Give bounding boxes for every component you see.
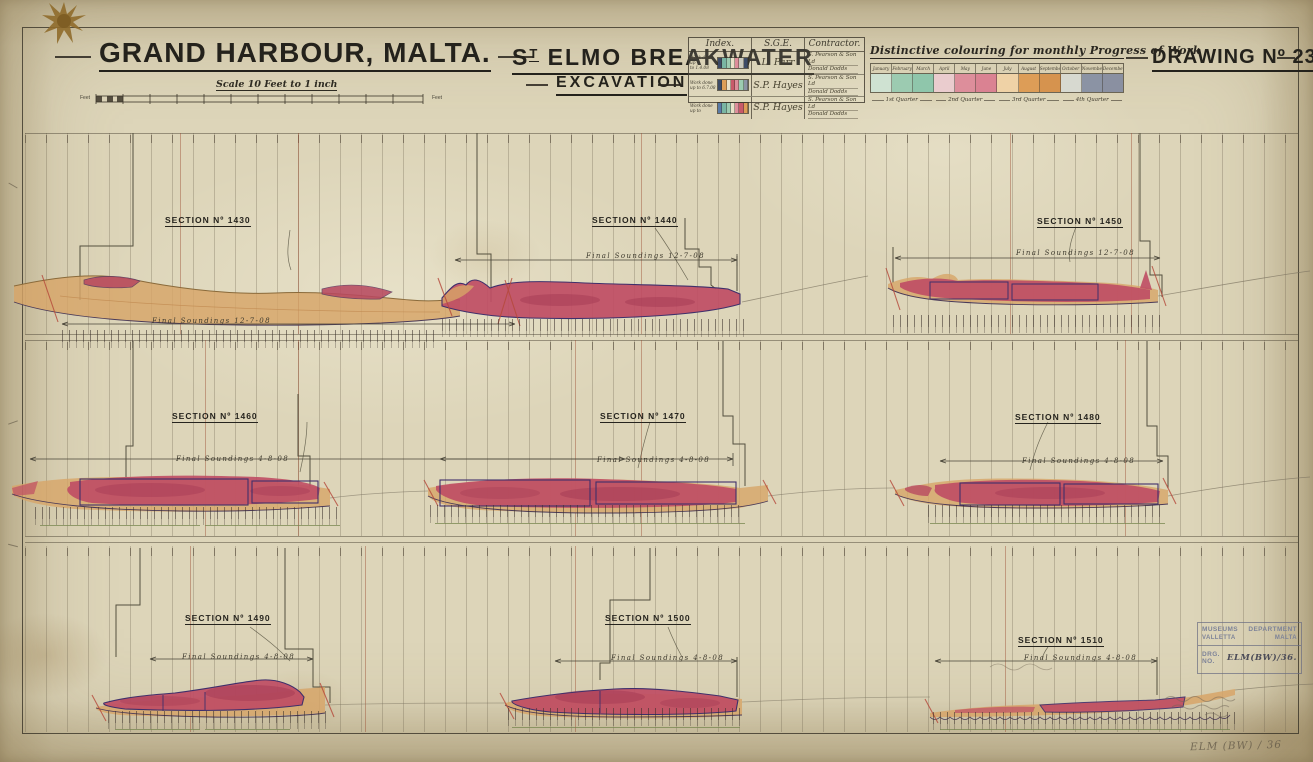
sge-signature: S.P. Hayes (752, 97, 805, 119)
section-label-1500: SECTION Nº 1500 (605, 613, 691, 625)
drawing-sheet: GRAND HARBOUR, MALTA. ST ELMO BREAKWATER… (0, 0, 1313, 762)
legend-month-colour (1061, 74, 1082, 92)
legend-month-label: August (1019, 64, 1040, 73)
work-done-label: Work done up (690, 55, 713, 65)
section-label-1450: SECTION Nº 1450 (1037, 216, 1123, 228)
legend-month-label: February (892, 64, 913, 73)
title-center-pre: S (512, 44, 529, 70)
progress-legend: Distinctive colouring for monthly Progre… (870, 44, 1124, 106)
final-soundings-1460: Final Soundings 4-8-08 (176, 455, 289, 463)
dimension-line-green (205, 729, 290, 730)
contractor-signature: S. Pearson & Son Ld (808, 97, 858, 111)
legend-quarter-label: 4th Quarter (1061, 94, 1125, 106)
stamp-country: MALTA (1275, 635, 1297, 641)
legend-month-label: April (934, 64, 955, 73)
contractor-signature: S. Pearson & Son Ld (808, 52, 858, 66)
pencil-note: ELM (BW) / 36 (1190, 739, 1282, 753)
legend-title: Distinctive colouring for monthly Progre… (870, 44, 1124, 59)
dimension-line-green (205, 525, 340, 526)
band-rule (25, 542, 1298, 543)
final-soundings-1440: Final Soundings 12-7-08 (586, 252, 705, 260)
work-done-date: up to 6.7.08 (690, 85, 716, 90)
legend-month-colour (913, 74, 934, 92)
legend-month-labels: January February March April May June Ju… (870, 63, 1124, 73)
stamp-drg-value: ELM(BW)/36. (1227, 653, 1297, 663)
index-row: Work doneup to 6.7.08 S.P. Hayes S. Pear… (689, 75, 864, 98)
dimension-line-green (940, 729, 1230, 730)
stamp-dept-word1: MUSEUMS (1202, 626, 1238, 633)
legend-month-colour (892, 74, 913, 92)
legend-month-label: October (1061, 64, 1082, 73)
contractor-signature: Donald Dodds (808, 66, 858, 74)
section-label-1440: SECTION Nº 1440 (592, 215, 678, 227)
contractor-signature: Donald Dodds (808, 111, 858, 119)
final-soundings-1470: Final Soundings 4-8-08 (597, 456, 710, 464)
legend-quarter-label: 2nd Quarter (934, 94, 998, 106)
legend-month-colour (955, 74, 976, 92)
legend-month-label: July (997, 64, 1018, 73)
contractor-signature: Donald Dodds (808, 89, 858, 97)
scale-ruler (93, 92, 429, 108)
legend-month-colour (1019, 74, 1040, 92)
dimension-line-green (40, 525, 200, 526)
legend-quarter-label: 3rd Quarter (997, 94, 1061, 106)
legend-month-colour (934, 74, 955, 92)
legend-month-colour (976, 74, 997, 92)
dimension-line-green (435, 523, 745, 524)
index-row: Work done upto 1.4.08 L. Parr S. Pearson… (689, 52, 864, 75)
section-label-1430: SECTION Nº 1430 (165, 215, 251, 227)
final-soundings-1430: Final Soundings 12-7-08 (152, 317, 271, 325)
stamp-dept-word2: DEPARTMENT (1248, 626, 1297, 633)
colour-swatch-strip (717, 102, 749, 114)
legend-month-colour (1103, 74, 1123, 92)
index-table-header: Index. S.G.E. Contractor. (689, 38, 864, 52)
page-title: GRAND HARBOUR, MALTA. (99, 37, 491, 72)
sections-row-1-drawing (0, 130, 1313, 336)
colour-swatch-strip (717, 57, 749, 69)
subtitle-dash (526, 84, 548, 86)
final-soundings-1480: Final Soundings 4-8-08 (1022, 457, 1135, 465)
dimension-line-green (930, 523, 1165, 524)
section-label-1510: SECTION Nº 1510 (1018, 635, 1104, 647)
legend-month-label: March (913, 64, 934, 73)
soundings-ticks (35, 507, 340, 519)
legend-month-label: January (871, 64, 892, 73)
legend-month-label: May (955, 64, 976, 73)
work-done-date: to 1.4.08 (690, 65, 709, 70)
soundings-ticks (430, 505, 745, 517)
legend-month-colour (1040, 74, 1061, 92)
stamp-drg-label: DRG. NO. (1202, 651, 1223, 665)
soundings-ticks (928, 505, 1166, 517)
soundings-ticks (108, 711, 330, 723)
legend-month-label: June (976, 64, 997, 73)
museums-department-stamp: MUSEUMS DEPARTMENT VALLETTA MALTA DRG. N… (1197, 622, 1302, 674)
drawing-no-dash (1277, 57, 1295, 59)
legend-month-label: September (1040, 64, 1061, 73)
section-label-1490: SECTION Nº 1490 (185, 613, 271, 625)
work-done-date: up to (690, 108, 701, 113)
pencil-signature-squiggle (1160, 693, 1270, 719)
sge-signature: S.P. Hayes (752, 75, 805, 97)
ink-splatter-icon (42, 0, 88, 48)
legend-month-colour (997, 74, 1018, 92)
sge-signature: L. Parr (752, 52, 805, 74)
colour-swatch-strip (717, 79, 749, 91)
contractor-signature: S. Pearson & Son Ld (808, 75, 858, 89)
section-label-1460: SECTION Nº 1460 (172, 411, 258, 423)
legend-month-label: November (1082, 64, 1103, 73)
final-soundings-1500: Final Soundings 4-8-08 (611, 654, 724, 662)
legend-month-colour (1082, 74, 1103, 92)
drawing-no-dash (1126, 57, 1148, 59)
section-label-1480: SECTION Nº 1480 (1015, 412, 1101, 424)
legend-month-label: December (1103, 64, 1123, 73)
index-col-header: Index. (689, 38, 752, 51)
soundings-ticks (62, 330, 440, 342)
soundings-ticks (508, 708, 745, 720)
soundings-ticks (893, 315, 1162, 327)
dimension-line-green (512, 727, 740, 728)
soundings-ticks (442, 319, 745, 331)
scale-label: Scale 10 Feet to 1 inch (216, 79, 337, 91)
final-soundings-1450: Final Soundings 12-7-08 (1016, 249, 1135, 257)
legend-quarters: 1st Quarter 2nd Quarter 3rd Quarter 4th … (870, 94, 1124, 106)
section-label-1470: SECTION Nº 1470 (600, 411, 686, 423)
subtitle-dash (658, 84, 680, 86)
index-row: Work doneup to S.P. Hayes S. Pearson & S… (689, 97, 864, 119)
scale-unit-right: Feet (432, 95, 442, 101)
sge-col-header: S.G.E. (752, 38, 805, 51)
final-soundings-1490: Final Soundings 4-8-08 (182, 653, 295, 661)
final-soundings-1510: Final Soundings 4-8-08 (1024, 654, 1137, 662)
index-table: Index. S.G.E. Contractor. Work done upto… (688, 37, 865, 103)
legend-month-colour (871, 74, 892, 92)
legend-month-colours (870, 73, 1124, 93)
stamp-city: VALLETTA (1202, 635, 1236, 641)
scale-unit-left: Feet (80, 95, 90, 101)
dimension-line-green (115, 729, 200, 730)
title-dash (55, 56, 91, 58)
legend-quarter-label: 1st Quarter (870, 94, 934, 106)
contractor-col-header: Contractor. (805, 38, 864, 51)
title-center-sup: T (529, 46, 539, 62)
